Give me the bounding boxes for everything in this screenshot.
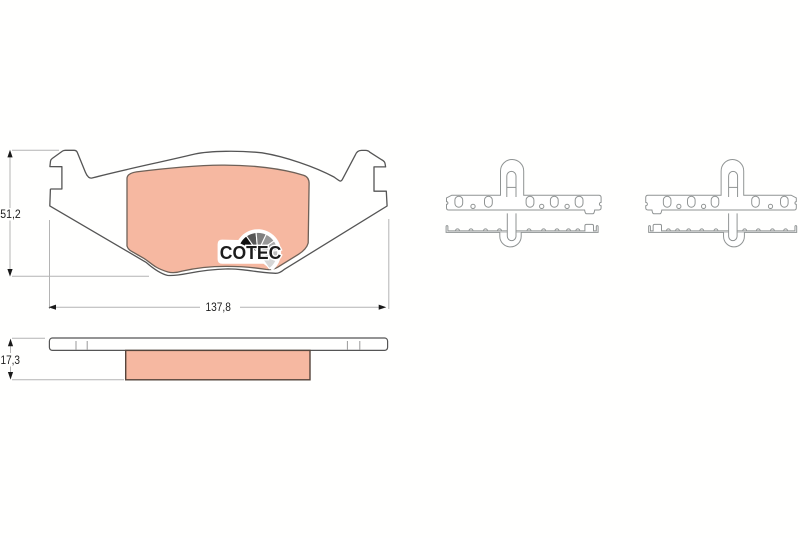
svg-text:137,8: 137,8 bbox=[206, 301, 231, 314]
svg-text:51,2: 51,2 bbox=[0, 208, 20, 221]
svg-text:COTEC: COTEC bbox=[220, 243, 282, 263]
svg-text:17,3: 17,3 bbox=[1, 354, 21, 367]
